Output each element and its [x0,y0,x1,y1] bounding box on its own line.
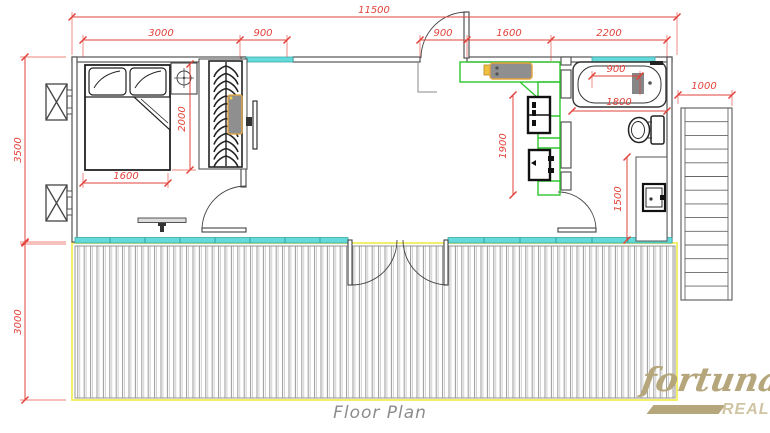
nightstand [171,63,197,94]
window-top [246,57,293,62]
dim-label-top-0: 3000 [148,28,173,39]
kitchen-sink [529,150,554,180]
floor-plan-caption: Floor Plan [333,403,427,423]
dim-label-top-3: 1600 [496,28,521,39]
cooktop [484,63,532,79]
entry-step [418,62,437,92]
tv-living [246,101,257,149]
floor-plan-page: 11500 3000 900 900 1600 2200 3500 3000 1… [0,0,770,433]
vanity-sink [636,157,667,241]
fortuna-logo: fortuna REAL [638,361,770,433]
glass-wall-left [75,238,348,244]
ac-unit-bottom [46,185,72,221]
dim-label-depth: 3500 [13,137,24,162]
logo-underline-bar [646,405,725,414]
bedroom-door [202,186,246,232]
dim-label-top-2: 900 [433,28,452,39]
deck [72,243,677,400]
logo-primary-text: fortuna [639,363,770,396]
dim-label-vanity: 1500 [613,186,624,211]
dim-label-bed-width: 1600 [113,171,138,182]
logo-secondary-text: REAL [722,401,770,419]
dim-label-kitchen: 1900 [498,133,509,158]
toilet [629,116,665,144]
dim-label-bath-length: 1800 [606,97,631,108]
dim-label-bed-length: 2000 [177,106,188,131]
dresser [228,95,242,134]
bath-partition [561,57,571,65]
dim-label-stairs: 1000 [691,81,716,92]
dim-label-bath-faucet: 900 [606,64,625,75]
deck-planks [75,246,675,398]
dim-label-overall: 11500 [358,5,390,16]
bathroom-door [558,192,596,232]
pillow [130,68,166,95]
bed [85,65,170,170]
wardrobe [199,59,247,169]
dim-label-top-1: 900 [253,28,272,39]
stairs [681,108,732,300]
oven [528,97,550,133]
pillow [89,68,126,95]
dim-label-top-4: 2200 [596,28,621,39]
window-bath [592,57,655,62]
dim-label-deck: 3000 [13,309,24,334]
ac-unit-top [46,84,72,120]
tv-bedroom [138,218,186,232]
